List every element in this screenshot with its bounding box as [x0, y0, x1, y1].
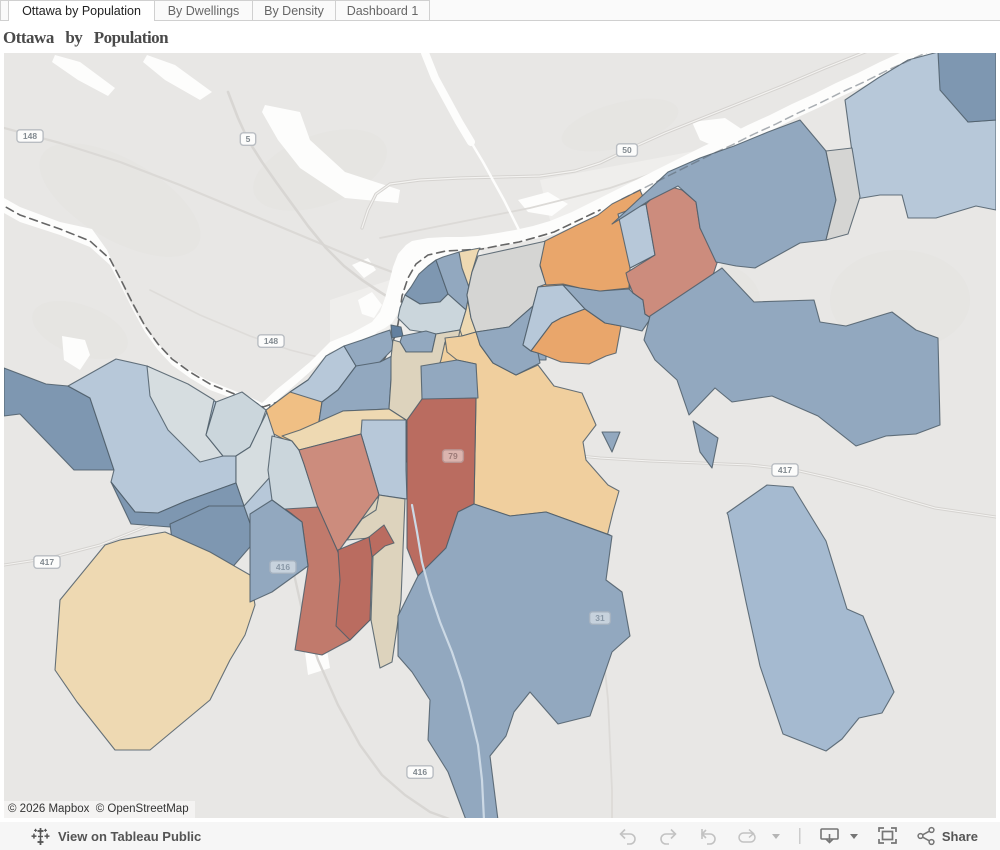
svg-text:79: 79	[448, 451, 458, 461]
svg-text:417: 417	[778, 465, 792, 475]
svg-text:416: 416	[413, 767, 427, 777]
svg-text:417: 417	[40, 557, 54, 567]
svg-text:5: 5	[246, 134, 251, 144]
svg-text:148: 148	[23, 131, 37, 141]
svg-text:148: 148	[264, 336, 278, 346]
svg-text:31: 31	[595, 613, 605, 623]
svg-text:50: 50	[622, 145, 632, 155]
svg-text:416: 416	[276, 562, 290, 572]
